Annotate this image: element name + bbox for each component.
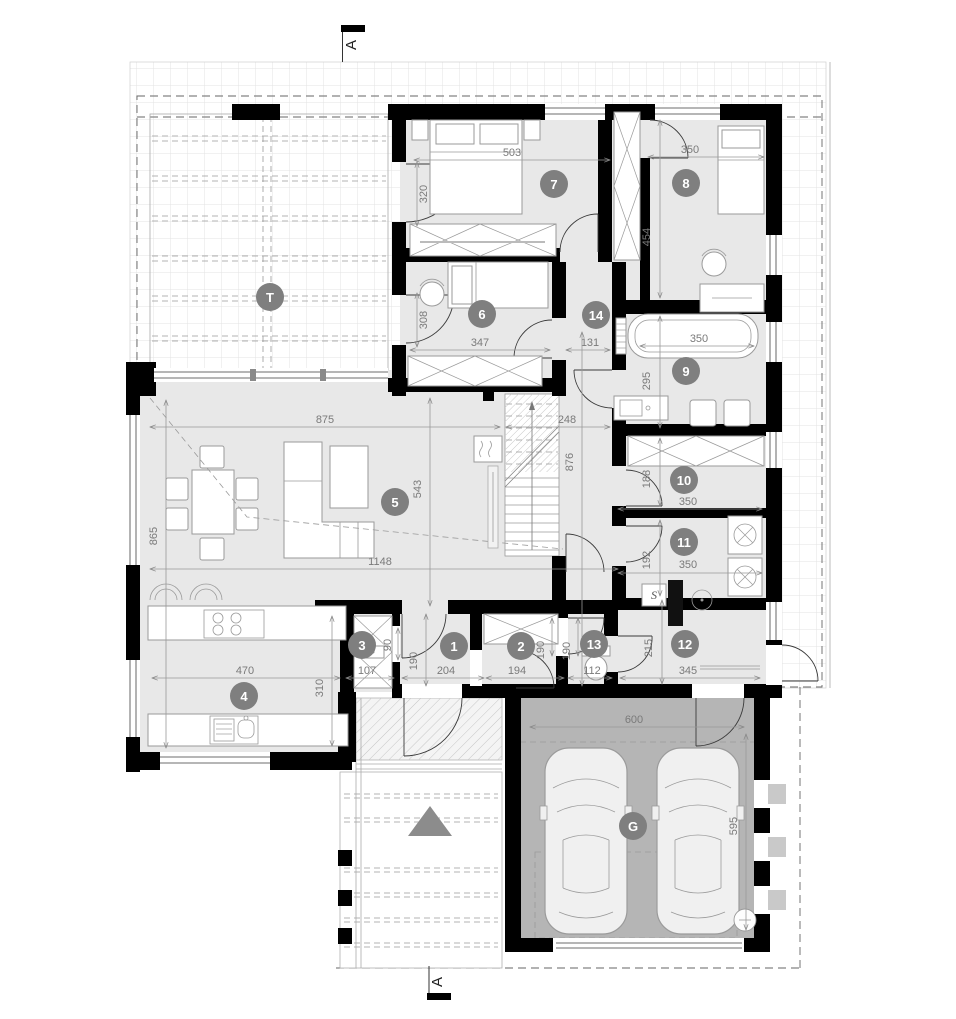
dim-label: 543 xyxy=(412,480,424,498)
hall-closet xyxy=(614,112,640,260)
room-marker-garage: G xyxy=(619,812,647,840)
toilet xyxy=(690,400,716,426)
room-marker-14: 14 xyxy=(582,301,610,329)
svg-text:9: 9 xyxy=(682,364,689,379)
svg-text:6: 6 xyxy=(478,307,485,322)
svg-text:12: 12 xyxy=(678,637,692,652)
svg-text:8: 8 xyxy=(682,176,689,191)
dim-label: 190 xyxy=(408,652,420,670)
dim-label: 350 xyxy=(679,559,697,571)
dim-label: 865 xyxy=(148,527,160,545)
dim-label: 350 xyxy=(679,496,697,508)
fireplace xyxy=(474,436,502,462)
svg-text:2: 2 xyxy=(517,639,524,654)
dim-label: 320 xyxy=(418,185,430,203)
room10-closet xyxy=(628,436,764,466)
room-marker-9: 9 xyxy=(672,357,700,385)
garage-access-opening xyxy=(692,684,744,698)
svg-text:13: 13 xyxy=(587,637,601,652)
room-marker-7: 7 xyxy=(540,170,568,198)
room-marker-11: 11 xyxy=(670,528,698,556)
dim-label: 190 xyxy=(561,642,573,660)
window-room7-north xyxy=(545,104,605,120)
svg-text:11: 11 xyxy=(677,535,691,550)
dim-label: 107 xyxy=(358,665,376,677)
dim-label: 503 xyxy=(503,147,521,159)
wardrobe xyxy=(408,356,542,386)
chair xyxy=(236,478,258,500)
dim-label: 600 xyxy=(625,714,643,726)
svg-text:3: 3 xyxy=(358,638,365,653)
room-marker-6: 6 xyxy=(468,300,496,328)
dim-label: 595 xyxy=(728,817,740,835)
floor-plan-drawing: S xyxy=(0,0,956,1014)
fence-post xyxy=(338,890,352,906)
room-marker-5: 5 xyxy=(381,488,409,516)
chair xyxy=(702,252,726,276)
window-room8-north xyxy=(655,104,720,120)
svg-text:7: 7 xyxy=(550,177,557,192)
dim-label: 192 xyxy=(641,551,653,569)
svg-text:4: 4 xyxy=(240,689,248,704)
dim-label: 350 xyxy=(690,333,708,345)
chair xyxy=(200,538,224,560)
svg-text:A: A xyxy=(429,977,446,987)
nightstand xyxy=(524,120,540,140)
terrace-glazing xyxy=(154,368,388,382)
window-living-west xyxy=(126,415,140,565)
svg-text:1: 1 xyxy=(450,639,457,654)
dim-label: 345 xyxy=(679,665,697,677)
svg-text:10: 10 xyxy=(677,473,691,488)
chair xyxy=(166,478,188,500)
room-marker-1: 1 xyxy=(440,632,468,660)
svg-text:G: G xyxy=(628,819,638,834)
dim-label: 347 xyxy=(471,337,489,349)
gas-symbol: S xyxy=(651,588,657,602)
garage-door-south xyxy=(553,938,744,952)
chair xyxy=(200,446,224,468)
svg-text:5: 5 xyxy=(391,495,398,510)
room-marker-terrace: T xyxy=(256,283,284,311)
dim-label: 190 xyxy=(535,641,547,659)
terrace-wall-stub xyxy=(232,104,280,120)
window-bath-east xyxy=(766,322,782,362)
svg-text:A: A xyxy=(343,40,360,50)
entry-porch xyxy=(356,698,502,769)
kitchen-counter xyxy=(148,606,346,640)
fence-post xyxy=(338,928,352,944)
east-door-opening xyxy=(766,645,782,685)
room-marker-13: 13 xyxy=(580,630,608,658)
room-marker-4: 4 xyxy=(230,682,258,710)
nightstand xyxy=(412,120,428,140)
dim-label: 350 xyxy=(681,144,699,156)
wardrobe xyxy=(410,224,556,256)
dim-label: 308 xyxy=(418,311,430,329)
chair xyxy=(420,282,444,306)
section-marker-top: A xyxy=(341,25,365,62)
bidet xyxy=(724,400,750,426)
window-room10-east xyxy=(766,432,782,468)
dim-label: 454 xyxy=(641,228,653,246)
dim-label: 204 xyxy=(437,665,455,677)
dim-label: 188 xyxy=(641,470,653,488)
entry-door-opening xyxy=(402,684,462,698)
dim-label: 470 xyxy=(236,665,254,677)
room-marker-3: 3 xyxy=(348,631,376,659)
coffee-table xyxy=(330,446,368,508)
car-right xyxy=(652,748,744,934)
dim-label: 194 xyxy=(508,665,526,677)
dim-label: 876 xyxy=(564,453,576,471)
svg-text:14: 14 xyxy=(589,308,604,323)
room-marker-8: 8 xyxy=(672,169,700,197)
room-marker-2: 2 xyxy=(507,632,535,660)
dim-label: 295 xyxy=(641,372,653,390)
dim-label: 875 xyxy=(316,414,334,426)
window-kitchen-south xyxy=(160,752,270,770)
boiler xyxy=(668,580,683,626)
floor-plan-canvas: S xyxy=(0,0,956,1014)
dim-label: 112 xyxy=(583,665,601,677)
car-left xyxy=(540,748,632,934)
dim-label: 310 xyxy=(314,679,326,697)
room-marker-12: 12 xyxy=(671,630,699,658)
window-room12-east xyxy=(766,602,782,640)
garage-vents-east xyxy=(754,780,786,914)
window-room8-east xyxy=(766,235,782,275)
chair xyxy=(236,508,258,530)
svg-text:T: T xyxy=(266,290,274,305)
dim-label: 131 xyxy=(581,337,599,349)
dim-label: 215 xyxy=(643,639,655,657)
window-kitchen-west xyxy=(126,660,140,737)
dim-label: 90 xyxy=(382,639,394,651)
section-marker-bottom: A xyxy=(427,966,451,1000)
dining-table xyxy=(192,470,234,534)
dim-label: 1148 xyxy=(368,556,392,568)
room-marker-10: 10 xyxy=(670,466,698,494)
fence-post xyxy=(338,850,352,866)
chair xyxy=(166,508,188,530)
dim-label: 248 xyxy=(558,414,576,426)
